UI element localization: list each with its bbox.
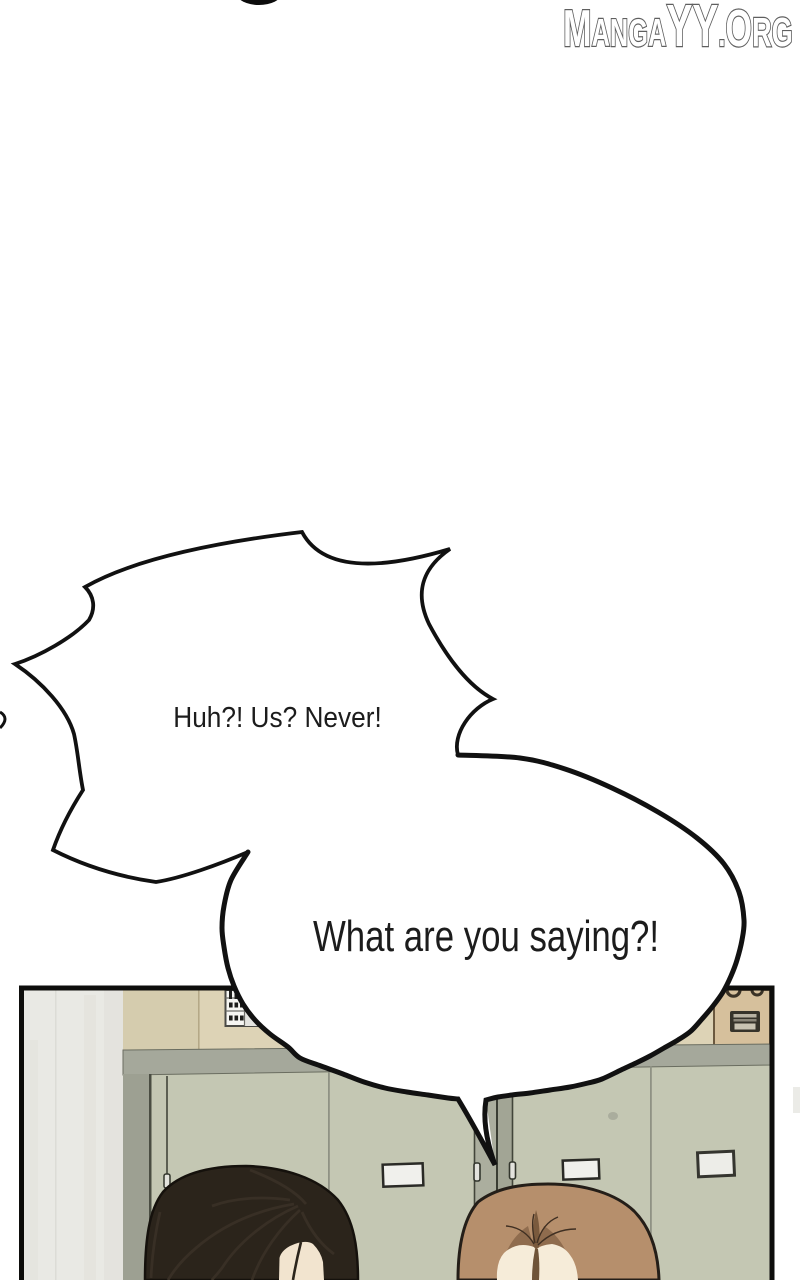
svg-text:Huh?! Us? Never!: Huh?! Us? Never! [173,701,381,734]
svg-text:What are you saying?!: What are you saying?! [313,912,659,961]
